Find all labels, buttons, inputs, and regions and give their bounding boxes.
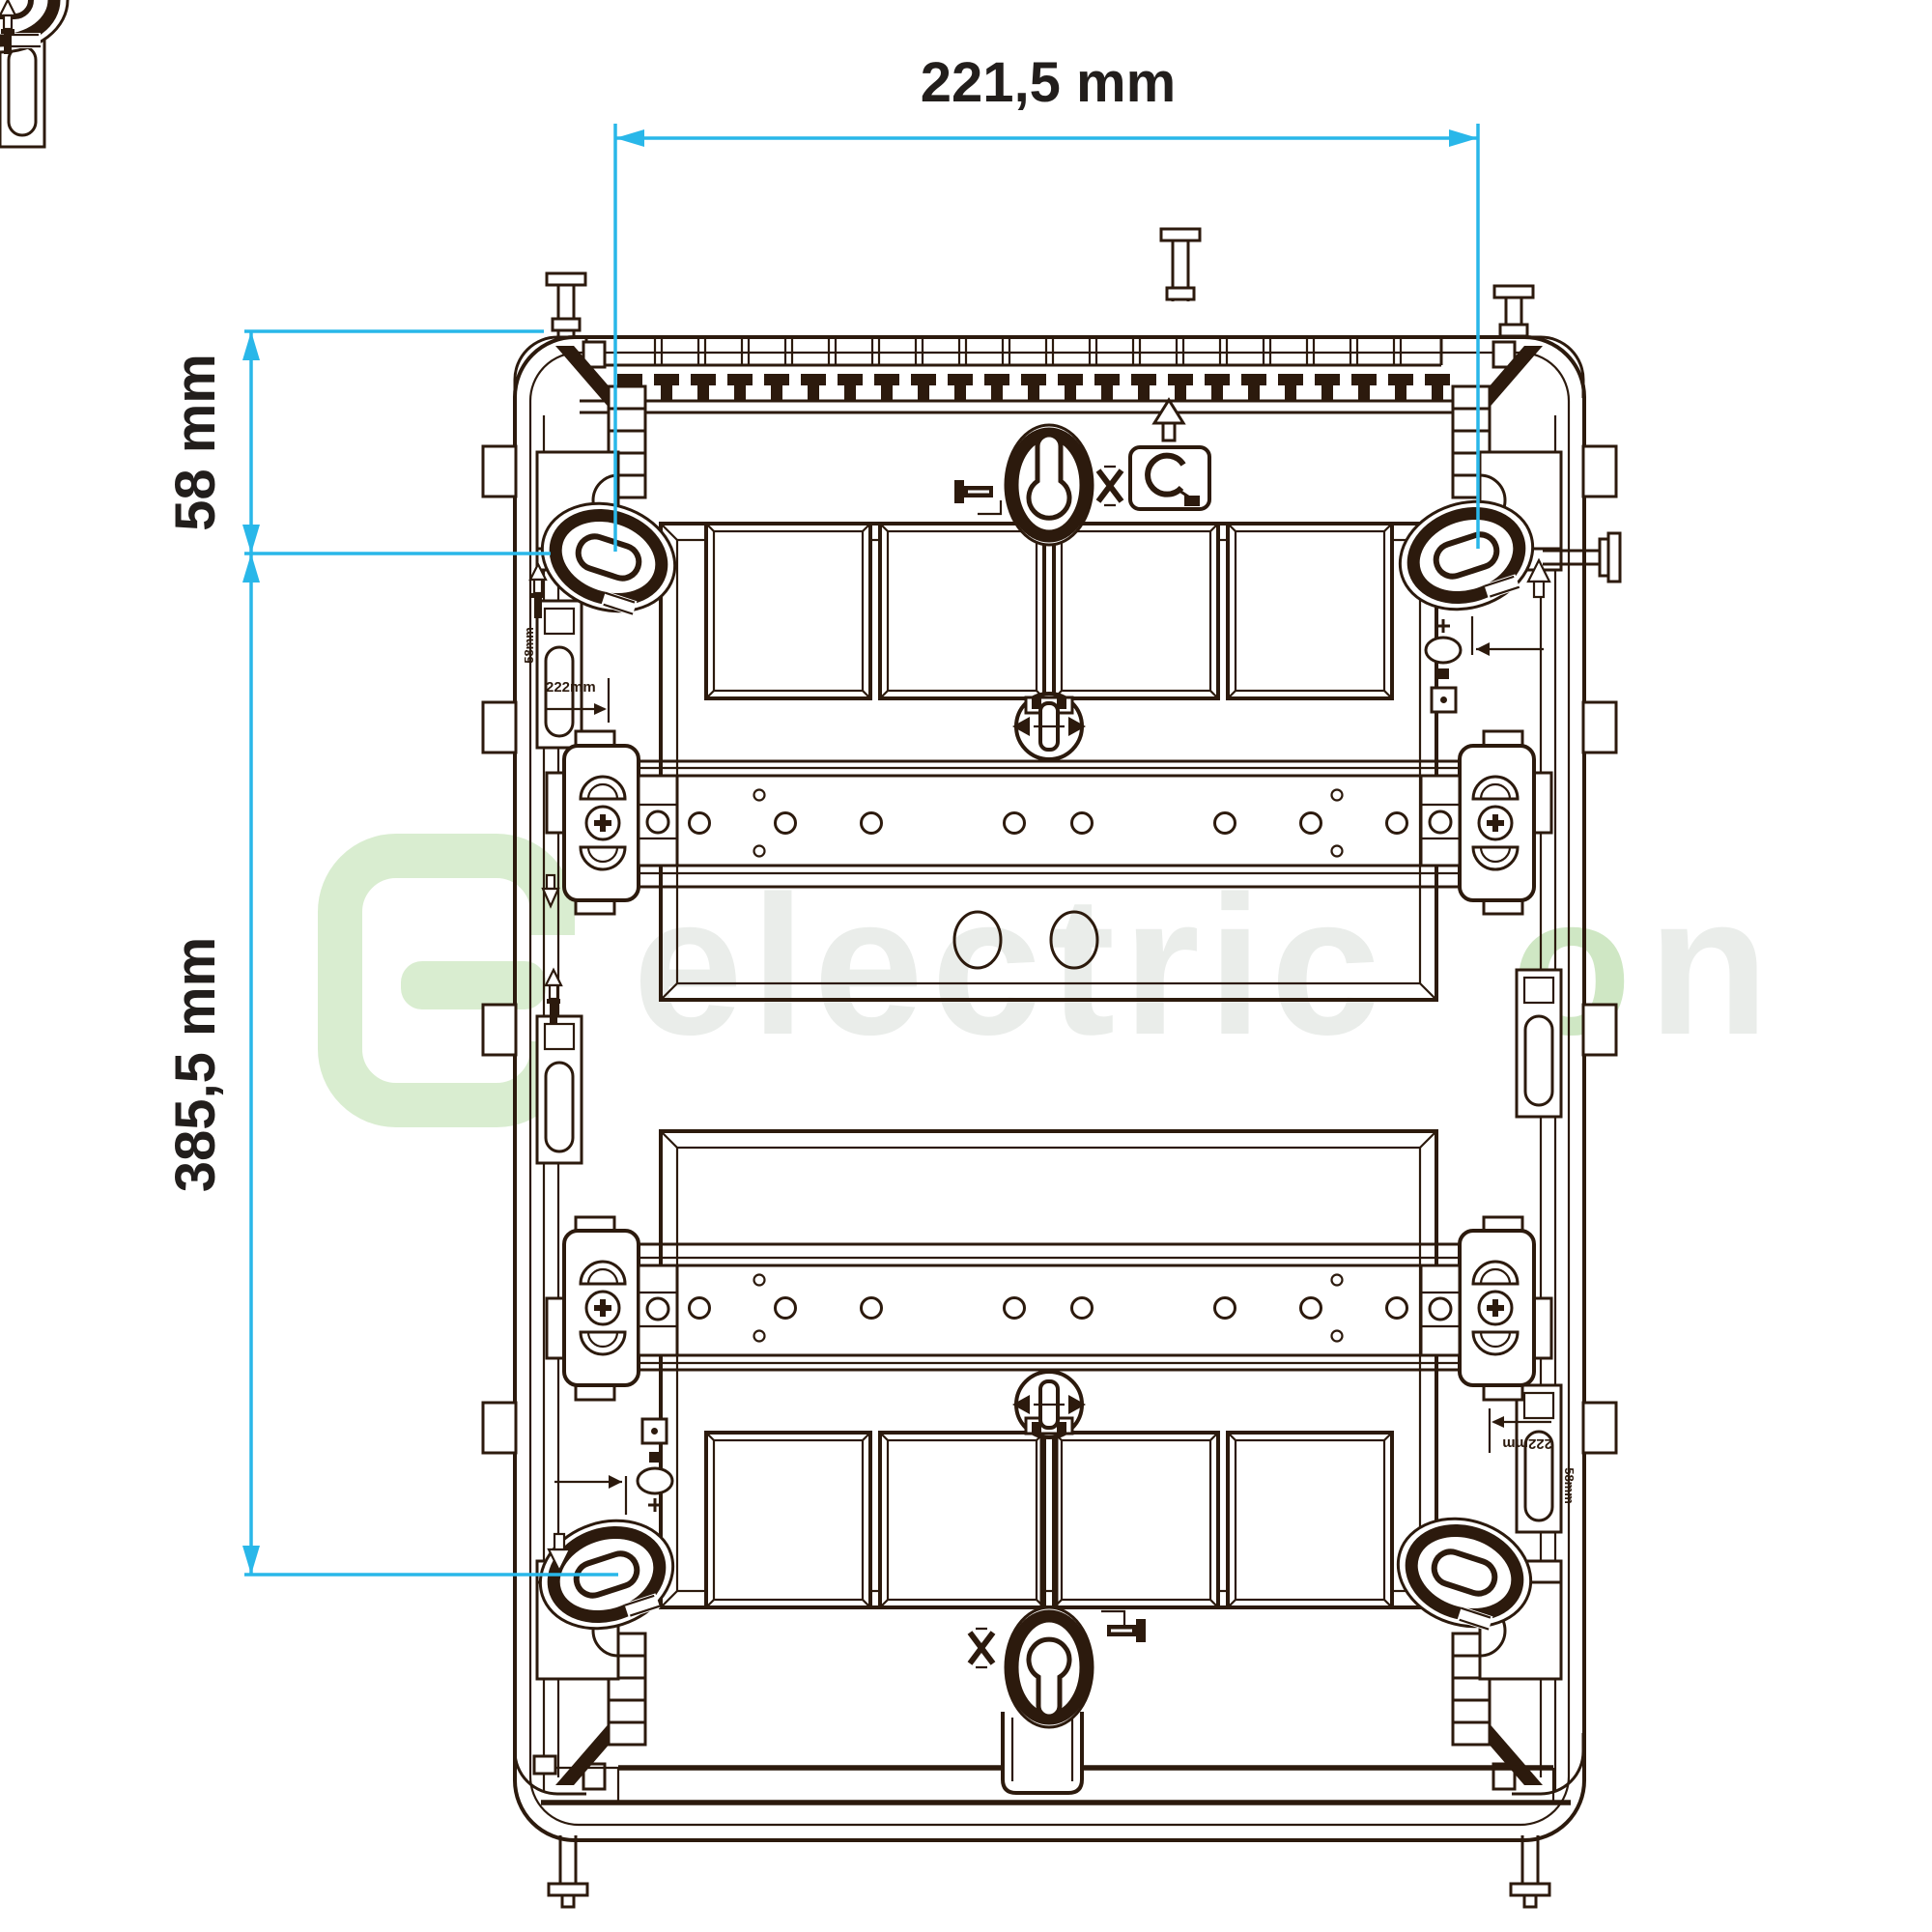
- knockout-windows: [706, 524, 1392, 698]
- do-not-icon: [970, 1629, 993, 1667]
- dimension-annotations: 221,5 mm 58 mm 385,5 mm: [164, 51, 1478, 1575]
- wall-latch-right-lower: [1517, 1385, 1561, 1532]
- cover-adjuster: [1012, 694, 1086, 759]
- cable-clip-icon: [1130, 400, 1209, 509]
- wall-latch-right-upper: [1517, 970, 1561, 1117]
- expansion-plug-icon: [1426, 638, 1461, 663]
- screw-icon: [1101, 1611, 1146, 1642]
- vent-comb-teeth: [617, 374, 1450, 401]
- din-rail-holes: [690, 790, 1407, 857]
- knockout-window: [880, 524, 1044, 698]
- dim-label-58: 58 mm: [164, 354, 227, 531]
- keyhole-mount-top: [1006, 425, 1093, 545]
- vent-comb: [580, 374, 1461, 412]
- do-not-icon: [1098, 467, 1122, 505]
- knockout-window: [1054, 524, 1218, 698]
- knockout-window: [706, 524, 870, 698]
- fixing-kit-marks: [1426, 619, 1461, 712]
- screw-icon: [954, 480, 1001, 514]
- dimension-left-upper: 58 mm: [164, 331, 551, 554]
- fixing-kit-marks-bottom: [638, 1419, 672, 1512]
- t-screw-top-mid: [1161, 229, 1200, 301]
- t-screw-bottom-right: [1511, 1835, 1549, 1907]
- wall-latch-left-upper: [537, 601, 582, 748]
- t-screw-top-left: [547, 273, 585, 337]
- t-screw-bottom-left: [549, 1835, 587, 1907]
- dim-label-385: 385,5 mm: [164, 937, 227, 1192]
- module-assembly-lower: [547, 1131, 1551, 1607]
- dim-label-width: 221,5 mm: [921, 51, 1176, 114]
- micro-side-note: 58mm: [522, 627, 536, 664]
- knockout-window: [1228, 524, 1392, 698]
- technical-drawing-page: electric o n: [0, 0, 1932, 1932]
- micro-offset-note: 222mm: [546, 679, 596, 696]
- t-screw-top-right: [1494, 286, 1533, 337]
- watermark-text-n: n: [1648, 855, 1776, 1076]
- wall-latch-left-lower: [537, 1016, 582, 1163]
- watermark-logo-bar: [401, 961, 546, 1009]
- drawing-canvas: electric o n: [0, 0, 1932, 1932]
